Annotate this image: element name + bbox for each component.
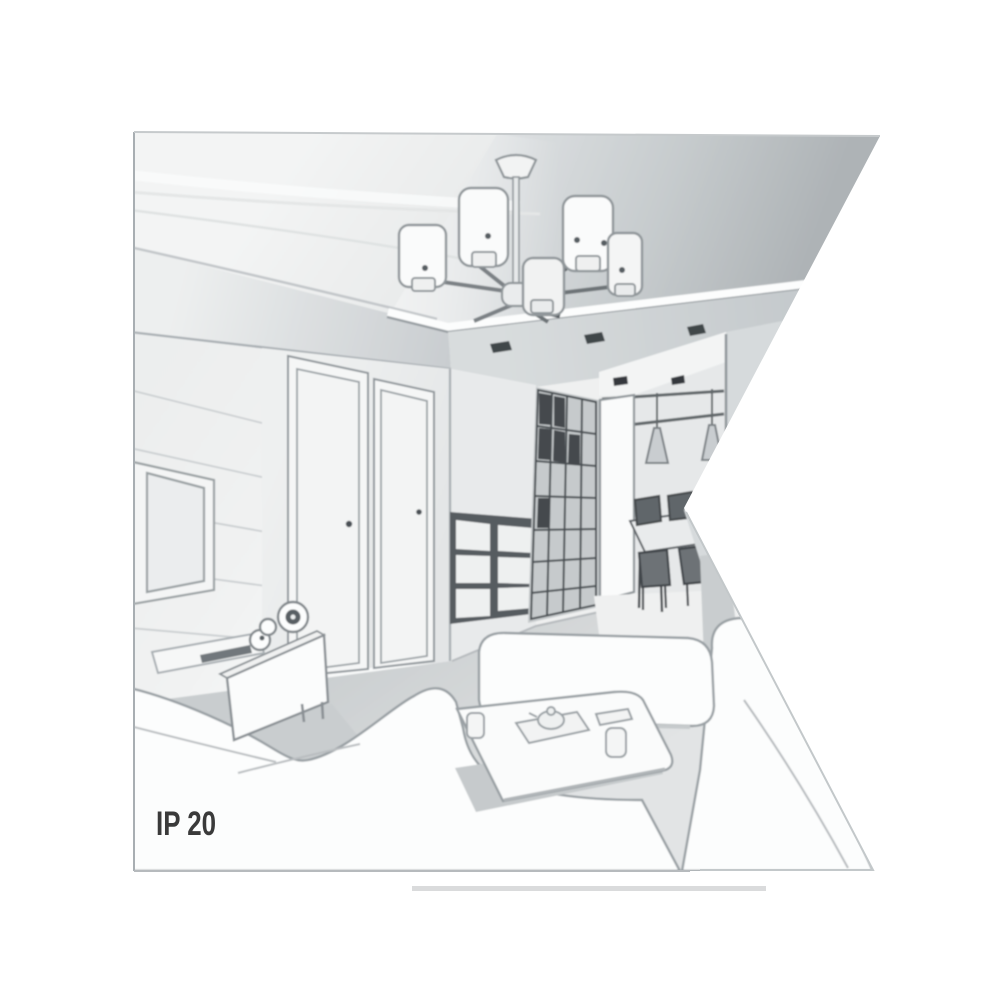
svg-text:IP 20: IP 20 [156,805,216,843]
